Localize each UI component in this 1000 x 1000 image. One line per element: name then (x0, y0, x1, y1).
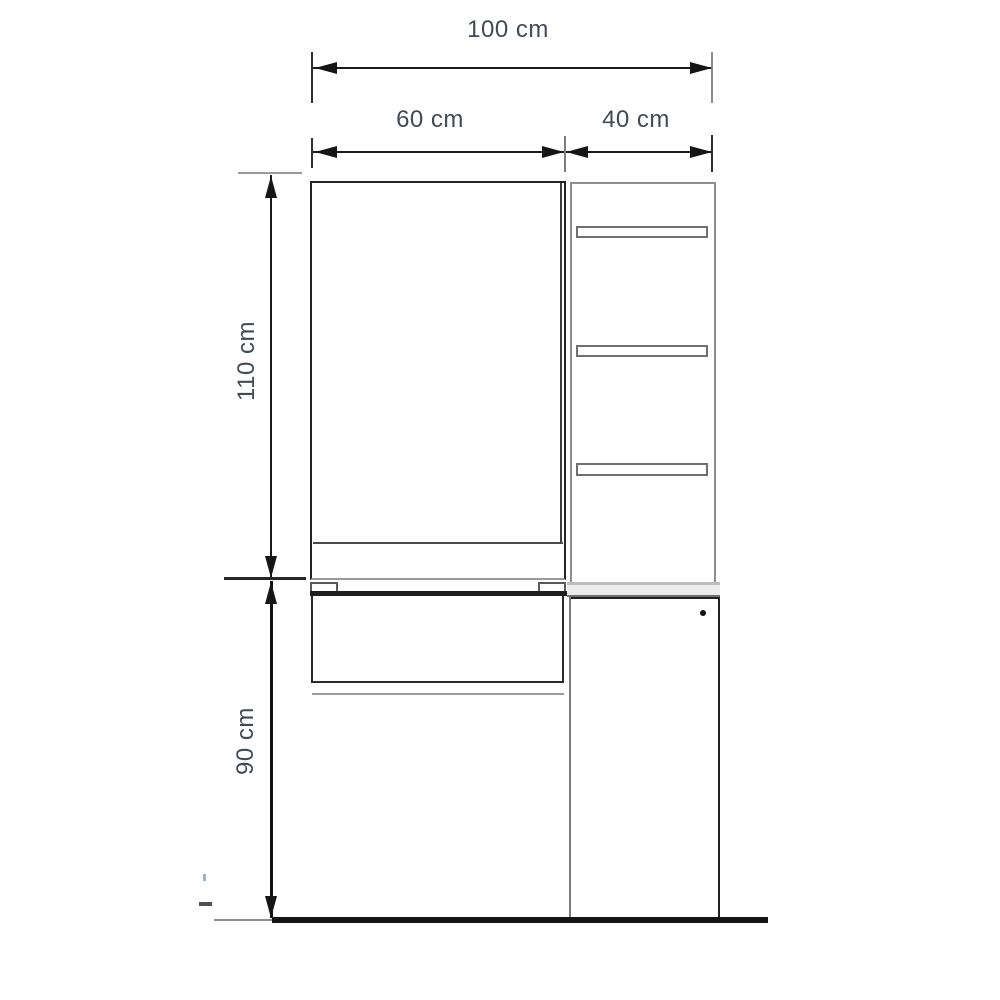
dim-upper-height-line (270, 175, 272, 578)
door-handle-knob (700, 610, 706, 616)
artifact-mark-grey (199, 902, 212, 906)
dim-door-width-line (313, 151, 712, 153)
dim-total-width-tick-left (311, 52, 313, 103)
drawer-front (311, 596, 564, 683)
upper-door-bottom-line (313, 542, 563, 544)
drawer-gap-line (312, 693, 564, 695)
dim-height-tick-top (238, 172, 302, 174)
dim-lower-height-arrow-down-icon (265, 896, 277, 918)
dim-side-width-label: 40 cm (576, 106, 696, 134)
shelf-slot-1 (576, 226, 708, 238)
dim-lower-height-line (270, 581, 273, 918)
lower-door-panel (571, 597, 720, 919)
shelf-slot-3 (576, 463, 708, 476)
artifact-mark-blue (203, 874, 206, 881)
dim-height-tick-middle (224, 577, 306, 580)
dim-side-width-arrow-left-icon (566, 146, 588, 158)
dim-door-width-arrow-left-icon (315, 146, 337, 158)
dim-total-width-label: 100 cm (448, 16, 568, 44)
dim-door-width-tick-left (311, 138, 313, 168)
upper-door-panel (310, 181, 566, 580)
dim-lower-height-arrow-up-icon (265, 582, 277, 604)
dim-total-width-line (313, 67, 712, 69)
dim-total-width-arrow-left-icon (315, 62, 337, 74)
dim-door-width-arrow-right-icon (542, 146, 564, 158)
shelf-slot-2 (576, 345, 708, 357)
worktop-band-right (567, 582, 720, 597)
dim-side-width-arrow-right-icon (690, 146, 712, 158)
dim-total-width-arrow-right-icon (690, 62, 712, 74)
shelf-unit-panel (570, 182, 716, 585)
dim-upper-height-arrow-up-icon (265, 176, 277, 198)
floor-line (272, 917, 768, 923)
dim-lower-height-label: 90 cm (232, 681, 260, 801)
dim-total-width-tick-right (711, 52, 713, 103)
dimension-drawing: 100 cm 60 cm 40 cm 110 cm 90 cm (0, 0, 1000, 1000)
dim-upper-height-arrow-down-icon (265, 556, 277, 578)
upper-door-right-edge-line (560, 183, 562, 542)
dim-upper-height-label: 110 cm (233, 301, 261, 421)
dim-door-width-label: 60 cm (370, 106, 490, 134)
